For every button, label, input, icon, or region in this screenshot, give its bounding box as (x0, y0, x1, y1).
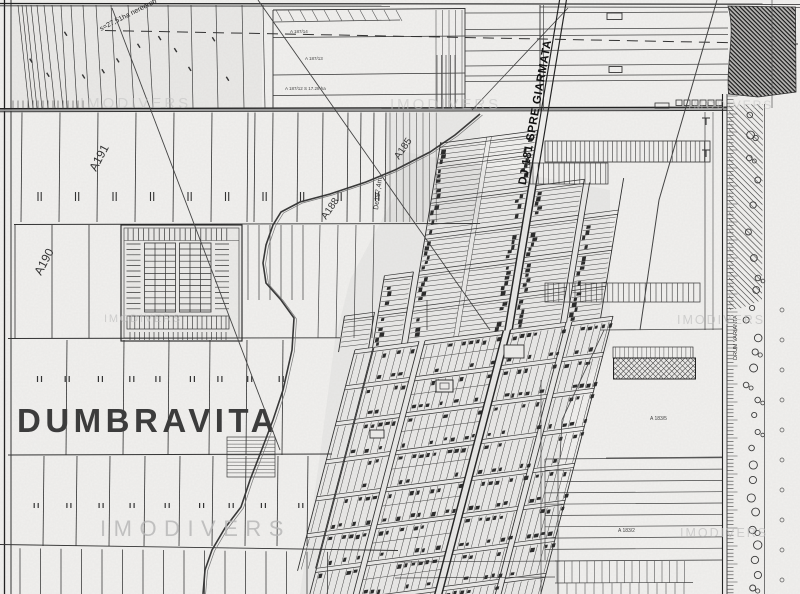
svg-text:IMODIVERS: IMODIVERS (677, 313, 765, 327)
svg-text:DUMBRAVITA: DUMBRAVITA (17, 402, 279, 439)
svg-text:A 183/2: A 183/2 (618, 528, 635, 534)
svg-text:IMODIVERS: IMODIVERS (104, 313, 182, 325)
svg-text:A 183/5: A 183/5 (650, 416, 667, 422)
svg-text:IMODIVERS: IMODIVERS (688, 98, 773, 112)
svg-text:IMODIVERS: IMODIVERS (390, 96, 501, 113)
svg-text:A 187/13: A 187/13 (305, 56, 323, 61)
svg-text:IMODIVERS: IMODIVERS (80, 95, 191, 112)
svg-text:IMODIVERS: IMODIVERS (680, 526, 768, 540)
svg-text:A 187/14: A 187/14 (290, 29, 308, 34)
svg-text:IMODIVERS: IMODIVERS (100, 516, 291, 541)
